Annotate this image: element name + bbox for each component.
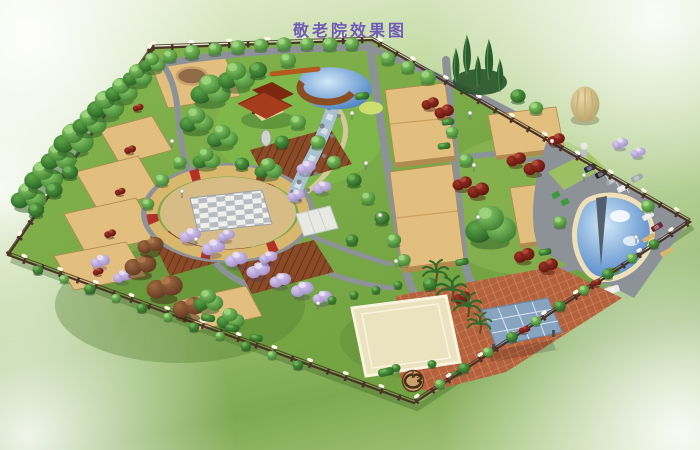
tree xyxy=(280,53,296,69)
shrub xyxy=(483,347,494,358)
car xyxy=(630,173,643,183)
shrub xyxy=(241,341,252,352)
shrub xyxy=(84,284,96,296)
tree xyxy=(420,70,436,86)
pale-willow-tree xyxy=(571,86,600,125)
tree xyxy=(346,173,361,188)
tree xyxy=(142,198,155,211)
tree xyxy=(446,126,459,139)
cypress-tree xyxy=(463,36,471,75)
tree xyxy=(275,136,289,151)
tree xyxy=(310,135,325,150)
shrub xyxy=(627,253,638,264)
nursing-home-site-plan-rendering xyxy=(0,0,700,450)
tree xyxy=(361,192,375,207)
shrub xyxy=(372,286,381,295)
checkerboard-pavement xyxy=(190,190,272,232)
tree xyxy=(230,40,245,55)
statue xyxy=(581,143,588,159)
tree xyxy=(401,61,415,76)
spiral-planter xyxy=(403,371,424,392)
shrub xyxy=(293,360,304,371)
tree xyxy=(184,45,200,61)
bonsai-shrub xyxy=(428,360,437,369)
shrub xyxy=(350,291,359,300)
shrub xyxy=(59,275,69,285)
tree xyxy=(380,51,395,66)
shrub xyxy=(163,313,173,323)
tree xyxy=(397,254,411,268)
tree xyxy=(62,165,78,181)
tree xyxy=(290,115,306,131)
tree xyxy=(374,211,389,226)
shrub xyxy=(267,351,277,361)
blossom-tree xyxy=(631,147,646,160)
garden-sculpture xyxy=(261,130,271,146)
tree xyxy=(235,158,249,173)
tree xyxy=(529,102,543,117)
shrub xyxy=(649,239,660,250)
shrub xyxy=(137,303,148,314)
building-a xyxy=(385,83,456,168)
tree xyxy=(423,278,437,293)
tree xyxy=(45,182,62,199)
shrub xyxy=(328,296,337,305)
shrub xyxy=(215,332,225,342)
shrub xyxy=(111,294,121,304)
page-title: 敬老院效果图 xyxy=(0,17,700,41)
tree xyxy=(553,216,567,230)
tree xyxy=(173,156,187,170)
shrub xyxy=(579,285,590,296)
tree xyxy=(510,89,525,104)
shrub xyxy=(435,379,446,390)
tree xyxy=(327,156,341,171)
tree xyxy=(163,50,177,65)
blossom-tree xyxy=(612,138,628,152)
shrub xyxy=(554,301,566,313)
shrub xyxy=(458,363,470,375)
tree xyxy=(346,234,359,247)
shrub xyxy=(189,322,200,333)
water-plants xyxy=(359,102,383,115)
tree xyxy=(249,62,267,80)
tree xyxy=(641,200,655,214)
shrub xyxy=(531,316,542,327)
shrub xyxy=(33,265,44,276)
shrub xyxy=(602,269,614,281)
tree xyxy=(459,154,473,169)
shrub xyxy=(506,332,518,344)
tree xyxy=(387,234,401,249)
tree xyxy=(28,203,44,219)
tree xyxy=(155,174,169,189)
central-circular-plaza xyxy=(144,166,312,260)
tree xyxy=(208,43,222,58)
shrub xyxy=(394,281,403,290)
